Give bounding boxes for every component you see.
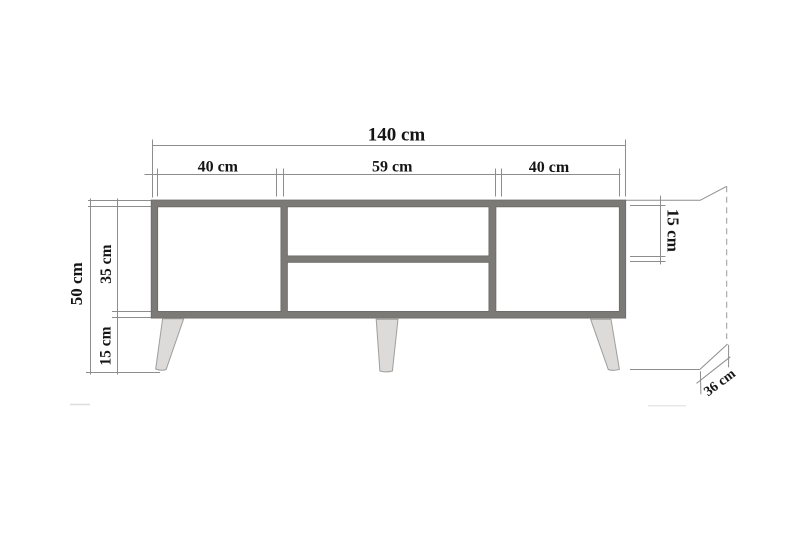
- svg-text:40 cm: 40 cm: [198, 159, 239, 176]
- svg-text:140 cm: 140 cm: [368, 125, 426, 146]
- svg-text:35 cm: 35 cm: [98, 244, 115, 283]
- svg-text:15 cm: 15 cm: [98, 326, 115, 365]
- svg-text:40 cm: 40 cm: [529, 159, 570, 176]
- svg-text:50 cm: 50 cm: [67, 262, 86, 305]
- svg-text:15 cm: 15 cm: [664, 209, 683, 252]
- svg-text:59 cm: 59 cm: [372, 158, 413, 175]
